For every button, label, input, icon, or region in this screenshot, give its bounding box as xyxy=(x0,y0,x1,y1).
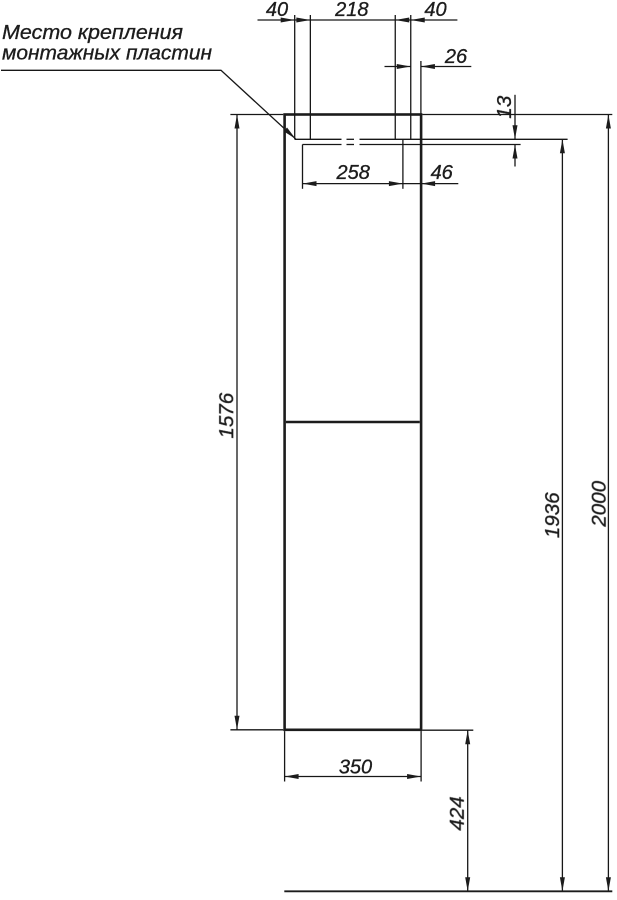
svg-text:1576: 1576 xyxy=(215,392,238,438)
svg-text:монтажных пластин: монтажных пластин xyxy=(2,43,212,65)
svg-text:46: 46 xyxy=(431,162,454,184)
svg-text:40: 40 xyxy=(266,0,288,21)
svg-text:218: 218 xyxy=(334,0,368,21)
svg-text:40: 40 xyxy=(424,0,446,21)
svg-text:1936: 1936 xyxy=(541,492,564,538)
svg-text:424: 424 xyxy=(446,796,469,830)
svg-text:2000: 2000 xyxy=(588,480,611,527)
svg-text:26: 26 xyxy=(444,46,468,68)
svg-text:Место крепления: Место крепления xyxy=(2,22,183,44)
svg-text:258: 258 xyxy=(336,162,370,184)
svg-text:350: 350 xyxy=(339,757,372,779)
